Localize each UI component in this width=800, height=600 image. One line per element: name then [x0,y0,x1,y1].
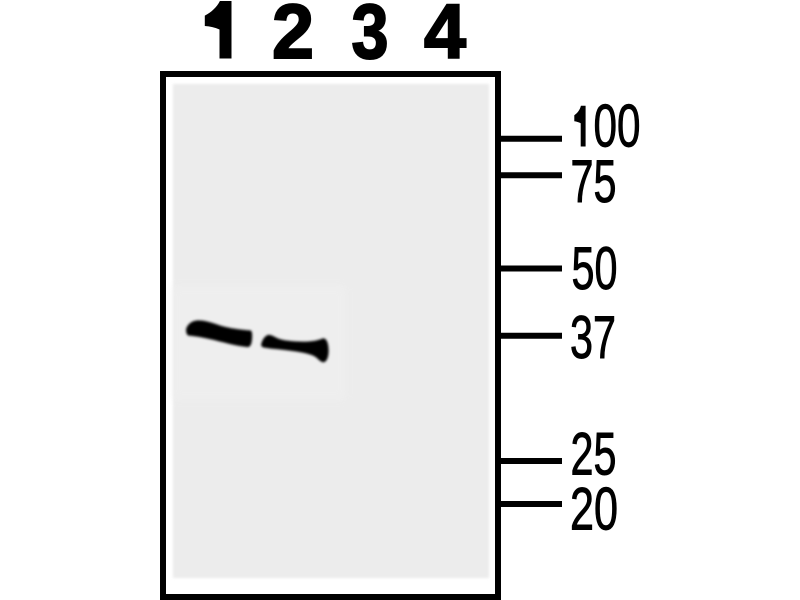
svg-text:75: 75 [571,148,617,215]
svg-text:50: 50 [572,235,618,302]
svg-text:2: 2 [272,0,314,75]
svg-text:4: 4 [424,0,466,75]
svg-text:37: 37 [570,304,616,371]
svg-text:3: 3 [352,0,389,75]
svg-text:20: 20 [570,476,618,543]
